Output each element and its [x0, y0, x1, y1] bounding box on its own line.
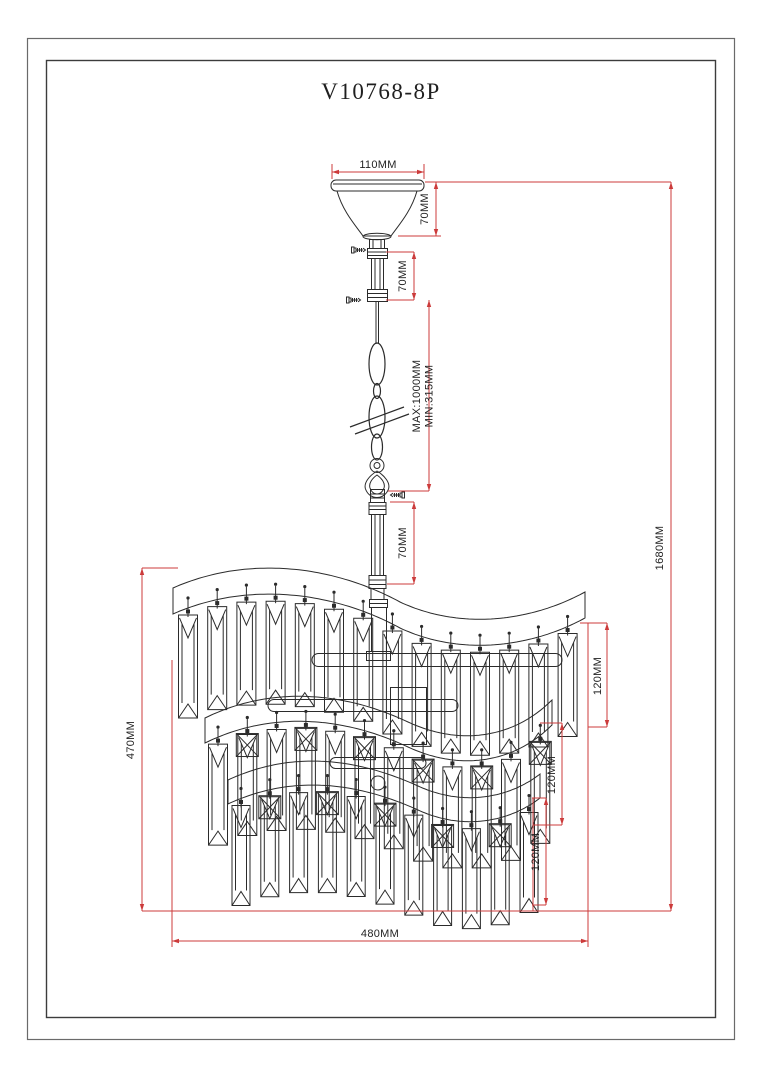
- crystal-prism: [355, 738, 374, 839]
- model-number-title: V10768-8P: [321, 79, 441, 104]
- dim-canopy-width: 110MM: [359, 159, 396, 171]
- dimension-arrow: [560, 818, 564, 825]
- dimension-arrow: [581, 939, 588, 943]
- dim-chain-min: MIN:315MM: [424, 365, 436, 428]
- dim-tier2-crystal: 120MM: [546, 756, 558, 794]
- dimension-arrow: [412, 502, 416, 509]
- dimension-arrow: [560, 723, 564, 730]
- tier1-crystals: [179, 583, 578, 756]
- dimension-arrow: [427, 300, 431, 307]
- crystal-bead: [471, 766, 493, 789]
- dimension-arrow: [427, 484, 431, 491]
- dimension-arrow: [669, 182, 673, 189]
- dimension-arrow: [434, 182, 438, 189]
- dimensions: 110MM70MM70MMMAX:1000MMMIN:315MM70MM1680…: [125, 159, 673, 947]
- dimension-arrow: [412, 252, 416, 259]
- screw-icon: [347, 297, 361, 303]
- crystal-prism: [325, 609, 344, 712]
- dim-chain-max: MAX:1000MM: [411, 360, 423, 433]
- chandelier-fixture: [173, 180, 585, 929]
- crystal-prism: [412, 643, 431, 746]
- dim-body-width: 480MM: [361, 928, 399, 940]
- crystal-prism: [443, 767, 462, 868]
- ceiling-canopy: [331, 180, 424, 249]
- drawing-page: V10768-8P110MM70MM70MMMAX:1000MMMIN:315M…: [0, 0, 763, 1080]
- dimension-arrow: [434, 229, 438, 236]
- inner-border: [47, 61, 716, 1018]
- crystal-prism: [209, 744, 228, 845]
- crystal-prism: [500, 650, 519, 753]
- dimension-arrow: [605, 720, 609, 727]
- crystal-prism: [238, 735, 257, 836]
- dimension-arrow: [417, 170, 424, 174]
- dimension-arrow: [140, 904, 144, 911]
- dim-overall-height: 1680MM: [654, 526, 666, 571]
- crystal-prism: [208, 607, 227, 710]
- suspension-rod-lower: [369, 503, 386, 600]
- dim-upper-rod: 70MM: [397, 260, 409, 292]
- tier3-crystals: [232, 774, 538, 929]
- crystal-bead: [316, 792, 338, 815]
- crystal-prism: [471, 652, 490, 755]
- chandelier-technical-drawing: V10768-8P110MM70MM70MMMAX:1000MMMIN:315M…: [0, 0, 763, 1080]
- crystal-prism: [237, 602, 256, 705]
- crystal-bead: [489, 824, 511, 847]
- dim-canopy-height: 70MM: [419, 193, 431, 225]
- crystal-prism: [179, 615, 198, 718]
- crystal-prism: [347, 797, 365, 897]
- dimension-arrow: [544, 898, 548, 905]
- crystal-prism: [376, 804, 394, 904]
- dimension-arrow: [669, 904, 673, 911]
- crystal-prism: [318, 793, 336, 893]
- crystal-bead: [259, 796, 281, 819]
- hanging-wire: [376, 302, 379, 345]
- frame-arm: [312, 654, 562, 667]
- crystal-prism: [261, 797, 279, 897]
- screw-icon: [391, 492, 405, 498]
- crystal-bead: [236, 734, 258, 757]
- crystal-prism: [383, 631, 402, 734]
- dim-body-height: 470MM: [125, 721, 137, 759]
- crystal-prism: [326, 731, 345, 832]
- dim-lower-rod: 70MM: [397, 527, 409, 559]
- crystal-prism: [441, 650, 460, 753]
- dimension-arrow: [140, 568, 144, 575]
- crystal-prism: [558, 634, 577, 737]
- dimension-arrow: [332, 170, 339, 174]
- chain: [350, 343, 409, 460]
- chain-break-mark: [350, 407, 409, 434]
- crystal-prism: [462, 829, 480, 929]
- crystal-prism: [354, 618, 373, 721]
- crystal-prism: [266, 601, 285, 704]
- center-ball: [371, 776, 385, 790]
- dim-tier3-crystal: 120MM: [530, 833, 542, 871]
- hook: [365, 459, 389, 498]
- crystal-bead: [412, 759, 434, 782]
- dimension-arrow: [544, 798, 548, 805]
- suspension-rod-upper: [368, 249, 388, 302]
- dim-tier1-crystal: 120MM: [592, 657, 604, 695]
- dimension-arrow: [412, 577, 416, 584]
- crystal-prism: [491, 825, 509, 925]
- frame-bracket: [391, 688, 427, 745]
- dimension-arrow: [605, 623, 609, 630]
- crystal-bead: [354, 737, 376, 760]
- crystal-bead: [374, 803, 396, 826]
- crystal-prism: [472, 767, 491, 868]
- tier1: [173, 568, 585, 755]
- crystal-prism: [290, 793, 308, 893]
- dimension-arrow: [172, 939, 179, 943]
- crystal-prism: [295, 604, 314, 707]
- crystal-bead: [295, 727, 317, 750]
- dimension-arrow: [412, 293, 416, 300]
- screw-icon: [352, 247, 366, 253]
- outer-border: [28, 39, 735, 1040]
